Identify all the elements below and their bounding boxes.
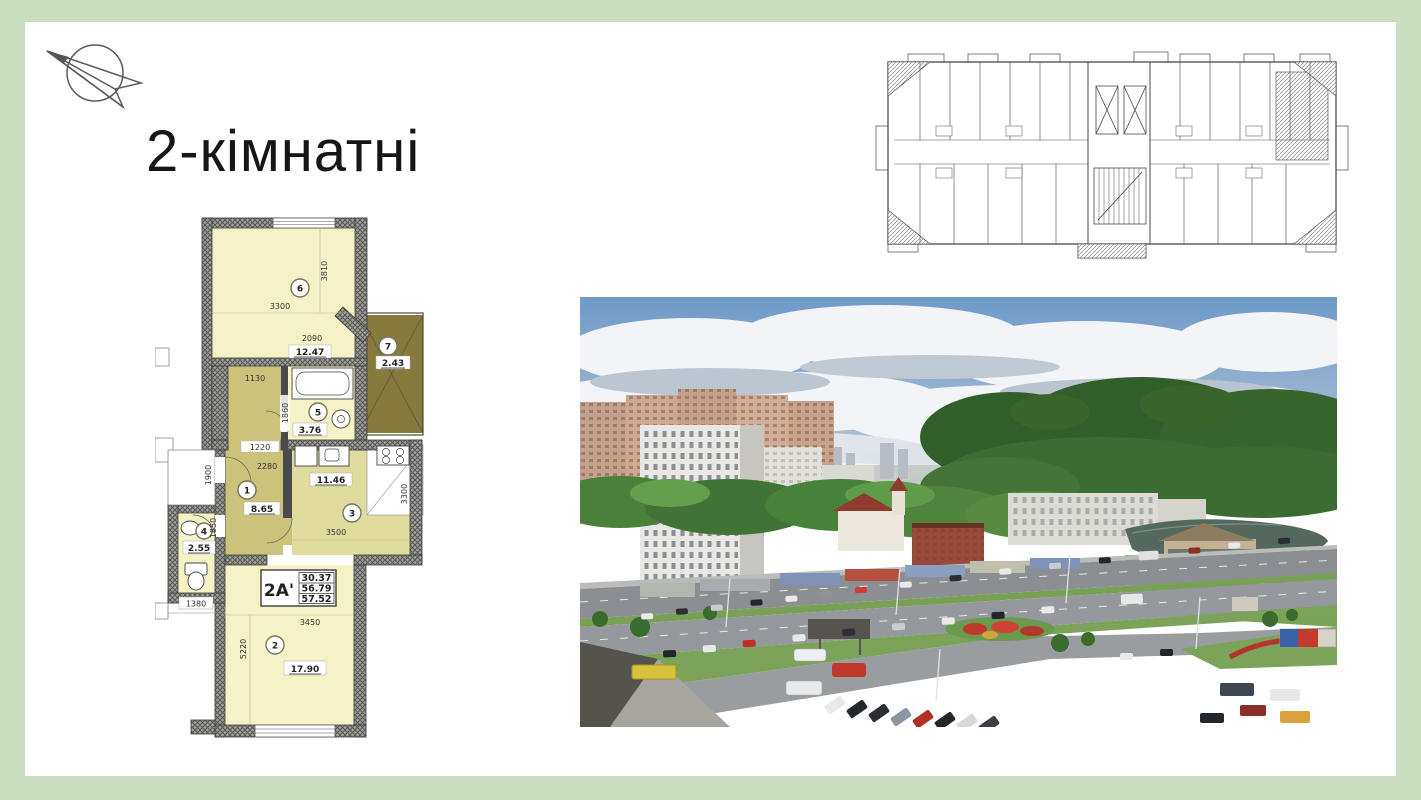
city-aerial-photo xyxy=(580,297,1337,727)
unit-label-box: 2A' 30.37 56.79 57.52 xyxy=(261,570,336,606)
building-partitions xyxy=(920,62,1310,244)
svg-text:30.37: 30.37 xyxy=(301,573,331,584)
svg-text:6: 6 xyxy=(297,285,303,295)
svg-text:2A': 2A' xyxy=(264,581,294,601)
svg-text:1380: 1380 xyxy=(186,600,206,609)
building-hatched-areas xyxy=(888,62,1336,258)
svg-text:4: 4 xyxy=(201,528,207,538)
building-core xyxy=(1094,86,1146,224)
svg-text:5: 5 xyxy=(315,409,321,419)
svg-text:3300: 3300 xyxy=(400,484,409,504)
svg-text:3: 3 xyxy=(349,510,355,520)
svg-text:1900: 1900 xyxy=(204,465,213,485)
slide-surface: 2-кімнатні xyxy=(25,22,1396,776)
svg-text:2090: 2090 xyxy=(302,334,322,343)
photo-parked-cars xyxy=(824,695,1000,727)
svg-text:1130: 1130 xyxy=(245,374,265,383)
svg-text:1220: 1220 xyxy=(250,443,270,452)
svg-text:3450: 3450 xyxy=(300,618,320,627)
svg-text:5220: 5220 xyxy=(239,639,248,659)
building-corridor xyxy=(894,140,1330,164)
svg-text:1860: 1860 xyxy=(281,403,290,423)
svg-text:12.47: 12.47 xyxy=(296,348,324,358)
svg-text:2280: 2280 xyxy=(257,462,277,471)
svg-text:3.76: 3.76 xyxy=(299,426,321,436)
paper-plane-logo xyxy=(33,30,151,118)
logo-circle xyxy=(67,45,123,101)
svg-text:2.43: 2.43 xyxy=(382,359,404,369)
svg-text:3300: 3300 xyxy=(270,302,290,311)
svg-text:57.52: 57.52 xyxy=(301,594,331,605)
svg-text:11.46: 11.46 xyxy=(317,476,345,486)
svg-text:2.55: 2.55 xyxy=(188,544,210,554)
svg-text:3810: 3810 xyxy=(320,261,329,281)
svg-text:2: 2 xyxy=(272,642,278,652)
apartment-floor-plan: 6 7 5 1 3 4 2 12.47 2.43 3.76 xyxy=(155,215,427,751)
svg-text:1: 1 xyxy=(244,487,250,497)
photo-right-cluster xyxy=(1200,683,1310,723)
building-floor-plan xyxy=(872,42,1352,268)
svg-text:1850: 1850 xyxy=(209,518,218,538)
svg-text:7: 7 xyxy=(385,343,391,353)
svg-text:8.65: 8.65 xyxy=(251,505,273,515)
svg-text:3500: 3500 xyxy=(326,528,346,537)
svg-text:17.90: 17.90 xyxy=(291,665,319,675)
svg-text:56.79: 56.79 xyxy=(301,583,331,594)
page-title: 2-кімнатні xyxy=(146,118,420,185)
